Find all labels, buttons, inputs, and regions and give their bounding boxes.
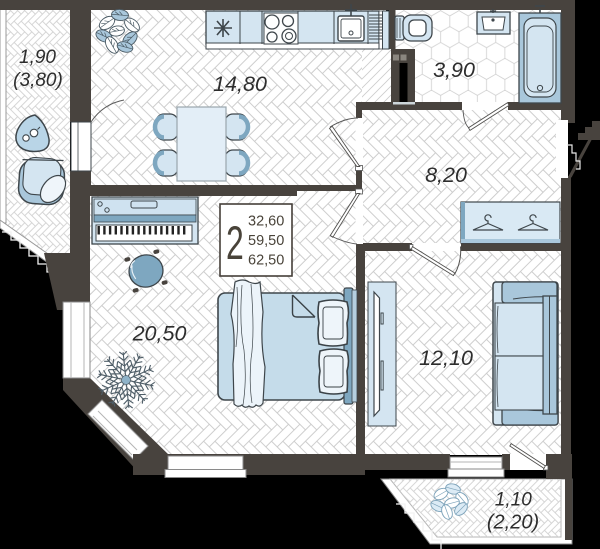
svg-text:8,20: 8,20 [425,163,467,187]
svg-text:32,60: 32,60 [248,214,284,230]
svg-text:20,50: 20,50 [132,322,187,346]
svg-text:2: 2 [226,217,244,270]
svg-text:12,10: 12,10 [419,346,473,370]
svg-text:59,50: 59,50 [248,233,284,249]
svg-text:1,90: 1,90 [19,47,56,68]
svg-text:14,80: 14,80 [213,72,267,96]
svg-text:1,10: 1,10 [495,490,532,511]
svg-text:3,90: 3,90 [433,58,475,82]
svg-text:62,50: 62,50 [248,253,284,269]
svg-text:(2,20): (2,20) [487,512,539,534]
svg-text:(3,80): (3,80) [13,70,63,91]
